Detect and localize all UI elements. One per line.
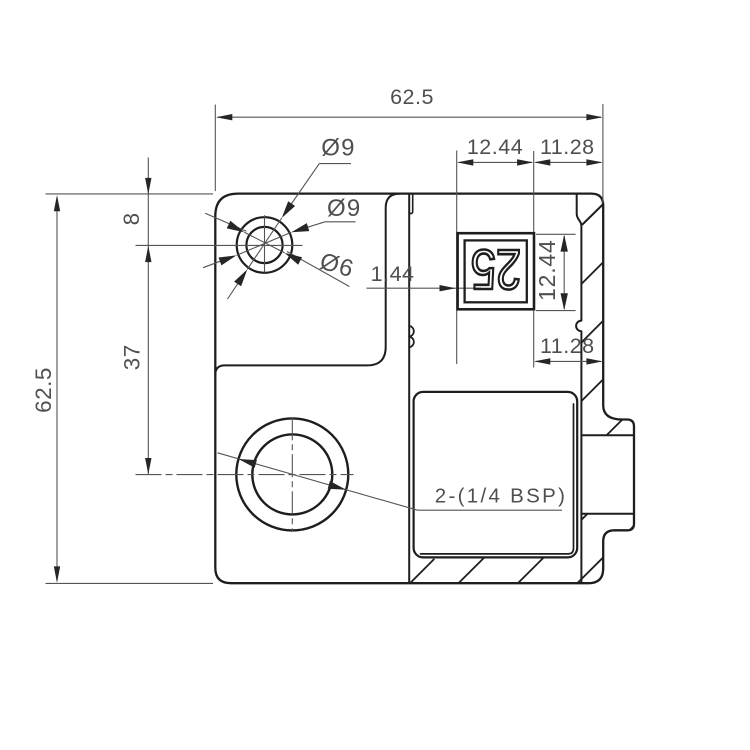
- svg-text:Ø9: Ø9: [327, 195, 361, 222]
- svg-text:12.44: 12.44: [467, 135, 523, 159]
- svg-text:8: 8: [119, 212, 144, 225]
- svg-text:62.5: 62.5: [31, 367, 56, 413]
- svg-text:Ø9: Ø9: [321, 135, 355, 162]
- svg-text:25: 25: [471, 238, 522, 302]
- svg-text:2-(1/4 BSP): 2-(1/4 BSP): [435, 484, 567, 507]
- svg-text:62.5: 62.5: [390, 85, 434, 109]
- svg-text:37: 37: [119, 344, 144, 370]
- svg-text:11.28: 11.28: [540, 135, 595, 159]
- svg-text:12.44: 12.44: [534, 239, 560, 301]
- svg-text:11.28: 11.28: [540, 334, 595, 358]
- svg-text:1.44: 1.44: [371, 262, 415, 286]
